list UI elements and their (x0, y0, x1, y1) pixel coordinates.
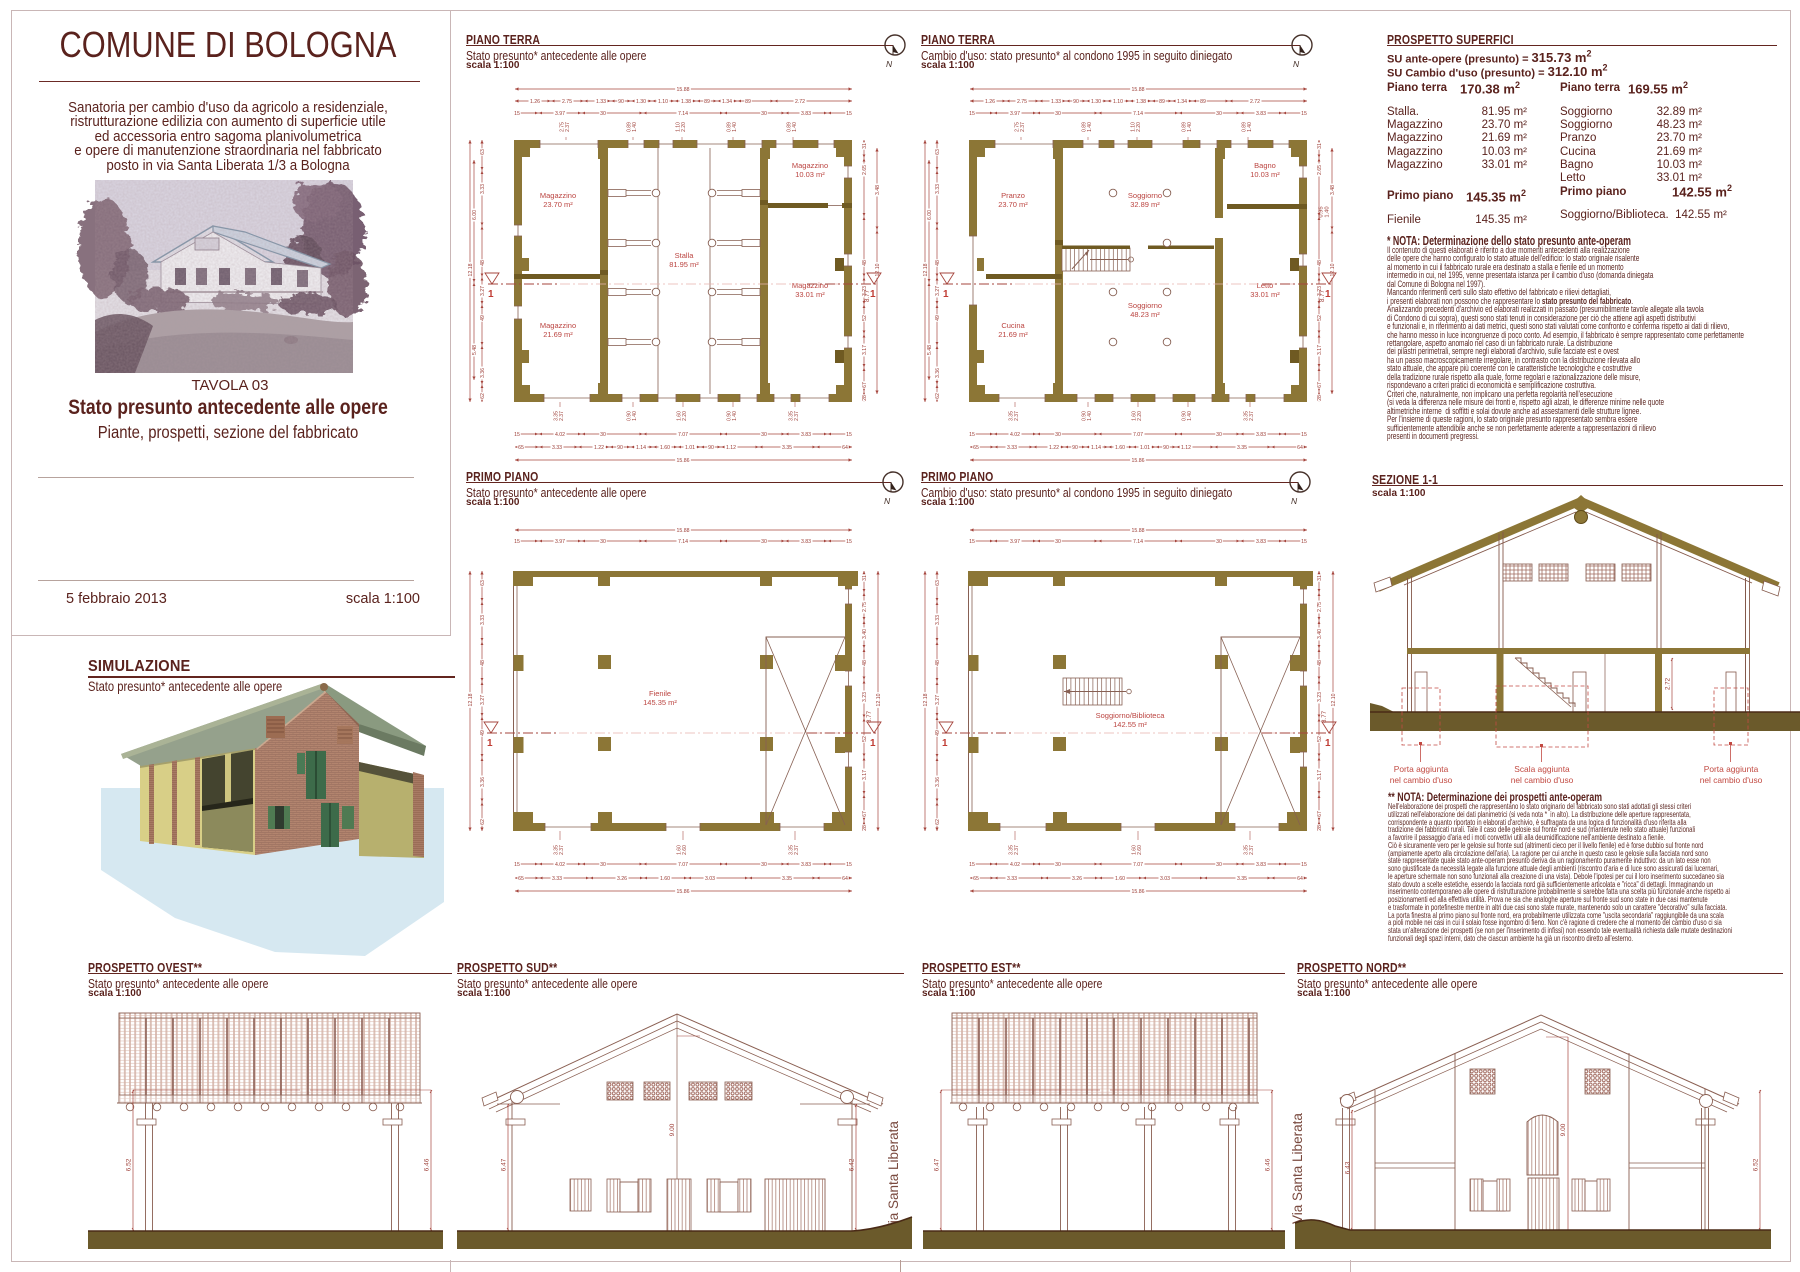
svg-text:Via Santa Liberata: Via Santa Liberata (886, 1121, 901, 1232)
svg-text:9.00: 9.00 (669, 1123, 676, 1136)
svg-text:6.46: 6.46 (1265, 1158, 1272, 1171)
svg-text:6.47: 6.47 (501, 1158, 508, 1171)
svg-text:6.46: 6.46 (424, 1158, 431, 1171)
svg-text:6.43: 6.43 (1345, 1161, 1352, 1174)
svg-text:6.52: 6.52 (1753, 1158, 1760, 1171)
svg-text:6.52: 6.52 (126, 1158, 133, 1171)
svg-text:Via Santa Liberata: Via Santa Liberata (1290, 1113, 1305, 1224)
svg-text:9.00: 9.00 (1560, 1123, 1567, 1136)
svg-text:6.42: 6.42 (849, 1158, 856, 1171)
svg-text:6.47: 6.47 (934, 1158, 941, 1171)
